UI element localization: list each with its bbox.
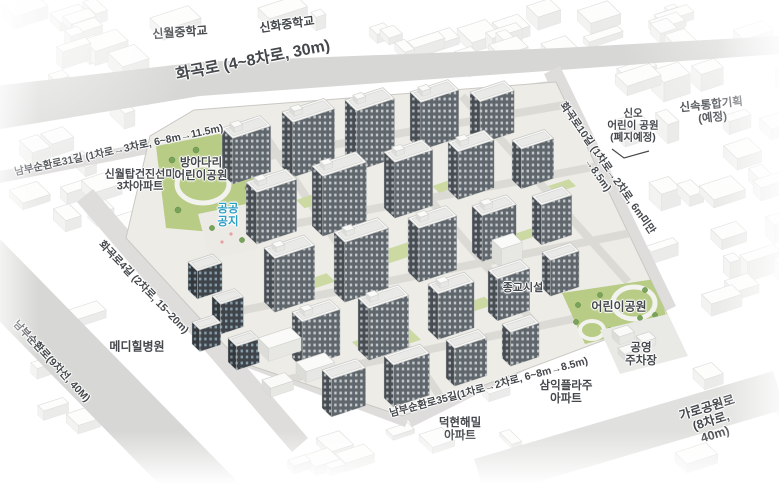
aerial-plan-view: 화곡로 (4~8차로, 30m) 신월중학교 신화중학교 남부순환로31길 (1… [0,0,779,484]
sino-park-pointer [612,149,649,158]
road-garo-park-ro [474,371,779,484]
annotations [612,149,649,158]
plan-rendering-canvas [0,0,779,484]
